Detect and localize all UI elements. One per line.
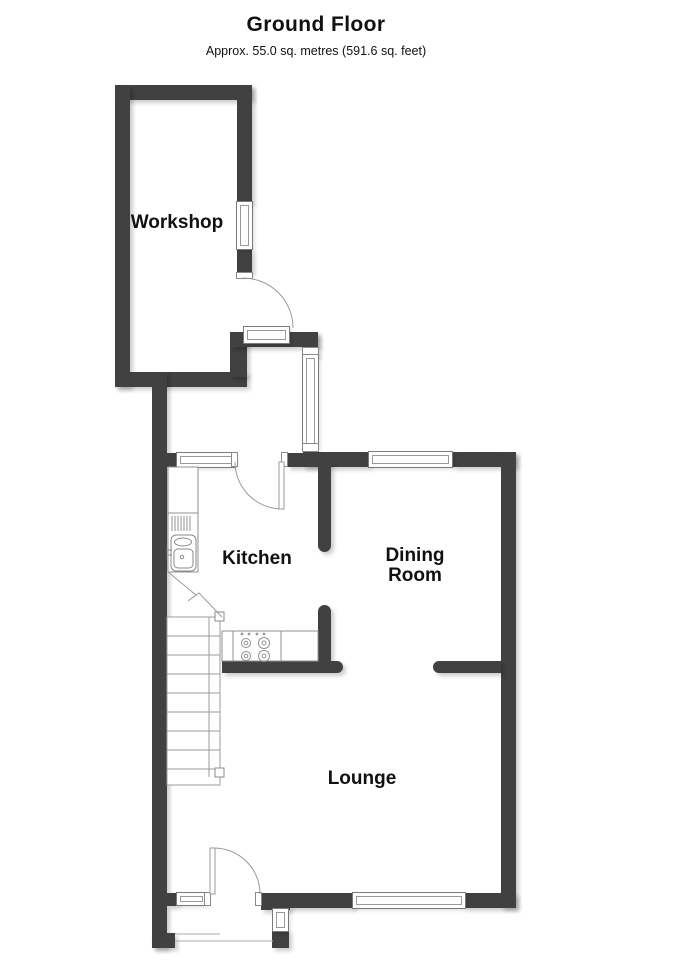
porch-outline: [175, 934, 273, 941]
doorframe-workshop: [236, 272, 253, 279]
wall-dining-top-left: [303, 452, 369, 467]
door-front: [210, 848, 260, 894]
doorframe-kitchen-left: [231, 452, 238, 467]
window-vestibule-cap-top: [302, 347, 319, 355]
doorframe-kitchen-right: [281, 452, 288, 467]
wall-divider-kitchen-dining-upper: [318, 462, 331, 552]
room-label-dining: Dining Room: [379, 546, 451, 586]
wall-dining-south-stub: [433, 661, 501, 673]
wall-dining-right: [501, 452, 516, 908]
window-dining: [368, 451, 453, 468]
wall-porch-left-foot: [152, 933, 175, 948]
wall-workshop-bottom: [115, 372, 247, 387]
window-lounge-left: [176, 892, 207, 906]
room-label-kitchen: Kitchen: [197, 549, 317, 569]
page-subtitle: Approx. 55.0 sq. metres (591.6 sq. feet): [0, 44, 632, 58]
wall-kitchen-south: [222, 661, 343, 673]
wall-divider-kitchen-dining-lower: [318, 605, 331, 663]
wall-workshop-right-lower: [237, 249, 252, 274]
fixtures-layer: [0, 0, 687, 971]
window-porch: [272, 908, 289, 932]
wall-lounge-bottom-right: [464, 893, 516, 908]
drainer-hatch: [172, 516, 190, 531]
kitchen-counter: [168, 467, 198, 572]
window-vestibule-cap-bottom: [302, 443, 319, 452]
wall-workshop-left: [115, 85, 130, 387]
kitchen-sink: [166, 535, 196, 571]
page-title: Ground Floor: [0, 13, 632, 37]
staircase: [167, 612, 224, 785]
door-kitchen-side: [235, 462, 284, 509]
room-label-lounge: Lounge: [302, 769, 422, 789]
doorframe-front-left: [204, 892, 211, 906]
wall-lounge-bottom-mid: [288, 893, 354, 908]
room-label-workshop: Workshop: [112, 213, 242, 233]
window-lounge-main: [352, 892, 466, 909]
door-workshop: [243, 278, 293, 328]
counter-break-line: [168, 572, 222, 617]
wall-workshop-right-upper: [237, 85, 252, 203]
doorframe-front-right: [255, 892, 262, 906]
window-kitchen: [176, 452, 236, 468]
cooker-hob: [222, 631, 318, 662]
wall-workshop-top: [115, 85, 252, 100]
window-vestibule-side: [302, 354, 319, 449]
wall-house-left: [152, 372, 167, 948]
wall-porch-column-bottom: [272, 930, 289, 948]
back-door-glazed: [243, 326, 290, 344]
floor-plan: Ground Floor Approx. 55.0 sq. metres (59…: [0, 0, 687, 971]
